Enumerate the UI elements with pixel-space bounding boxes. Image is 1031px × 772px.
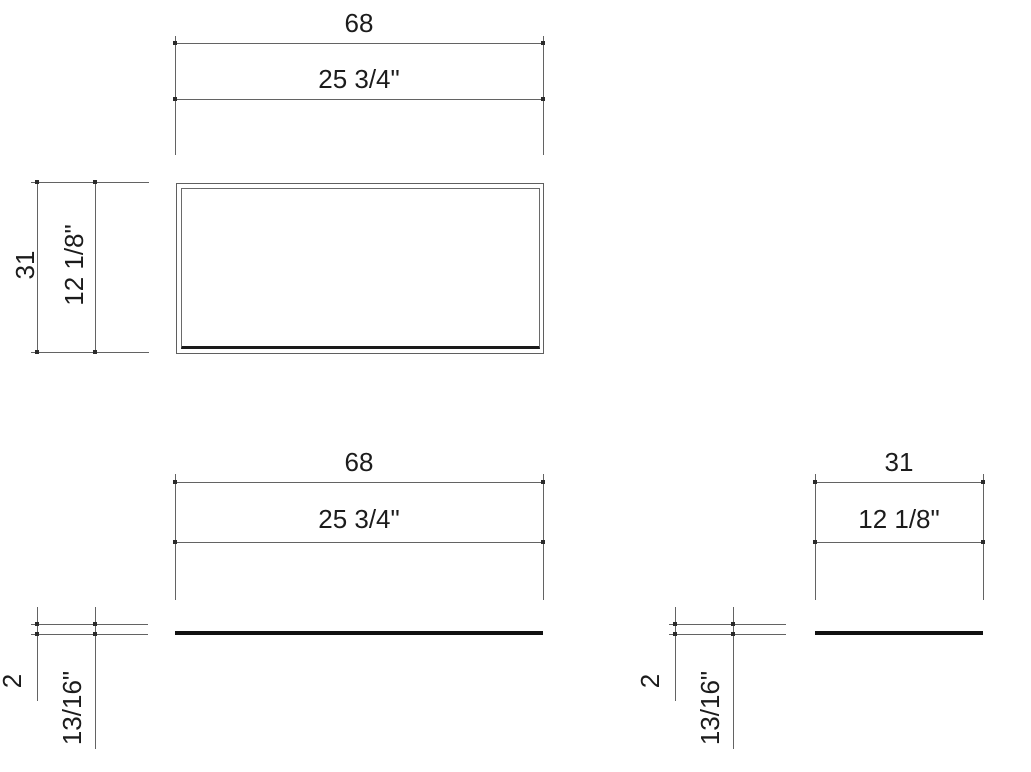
dimension-tick: [173, 97, 177, 101]
dimension-line: [37, 182, 38, 353]
extension-line: [31, 624, 148, 625]
dimension-tick: [35, 350, 39, 354]
dimension-tick: [173, 41, 177, 45]
dimension-tick: [173, 480, 177, 484]
dimension-line: [175, 99, 544, 100]
extension-line: [31, 352, 149, 353]
dimension-line: [815, 482, 984, 483]
extension-line: [175, 36, 176, 155]
dimension-tick: [93, 632, 97, 636]
side-thickness-inch-label: 13/16": [697, 671, 723, 745]
dimension-tick: [981, 480, 985, 484]
top-depth-cm-label: 31: [12, 251, 38, 280]
dimension-tick: [541, 540, 545, 544]
dimension-tick: [35, 622, 39, 626]
panel-inner-edge: [181, 188, 540, 349]
dimension-tick: [93, 622, 97, 626]
dimension-line: [175, 43, 544, 44]
dimension-tick: [35, 632, 39, 636]
dimension-line: [95, 182, 96, 353]
dimension-tick: [541, 480, 545, 484]
extension-line: [175, 474, 176, 600]
dimension-tick: [673, 622, 677, 626]
dimension-tick: [731, 632, 735, 636]
dimension-line: [175, 542, 544, 543]
extension-line: [31, 634, 148, 635]
front-width-inch-label: 25 3/4": [318, 506, 400, 532]
side-thickness-cm-label: 2: [637, 674, 663, 688]
side-depth-inch-label: 12 1/8": [858, 506, 940, 532]
front-thickness-inch-label: 13/16": [59, 671, 85, 745]
dimension-tick: [731, 622, 735, 626]
front-panel-edge: [175, 631, 543, 635]
dimension-line: [733, 607, 734, 749]
dimension-line: [175, 482, 544, 483]
extension-line: [543, 474, 544, 600]
dimension-tick: [981, 540, 985, 544]
dimension-tick: [813, 540, 817, 544]
dimension-tick: [673, 632, 677, 636]
top-width-cm-label: 68: [345, 10, 374, 36]
dimension-tick: [813, 480, 817, 484]
extension-line: [543, 36, 544, 155]
extension-line: [31, 182, 149, 183]
dimension-line: [815, 542, 984, 543]
side-panel-edge: [815, 631, 983, 635]
extension-line: [983, 474, 984, 600]
side-depth-cm-label: 31: [885, 449, 914, 475]
dimension-tick: [541, 97, 545, 101]
dimension-tick: [93, 180, 97, 184]
dimension-tick: [35, 180, 39, 184]
technical-drawing-canvas: 68 25 3/4" 31 12 1/8" 68 25 3/4": [0, 0, 1031, 772]
dimension-tick: [541, 41, 545, 45]
front-width-cm-label: 68: [345, 449, 374, 475]
top-width-inch-label: 25 3/4": [318, 66, 400, 92]
dimension-line: [95, 607, 96, 749]
extension-line: [815, 474, 816, 600]
top-depth-inch-label: 12 1/8": [61, 224, 87, 306]
front-thickness-cm-label: 2: [0, 674, 25, 688]
dimension-tick: [173, 540, 177, 544]
dimension-tick: [93, 350, 97, 354]
extension-line: [669, 624, 786, 625]
extension-line: [669, 634, 786, 635]
